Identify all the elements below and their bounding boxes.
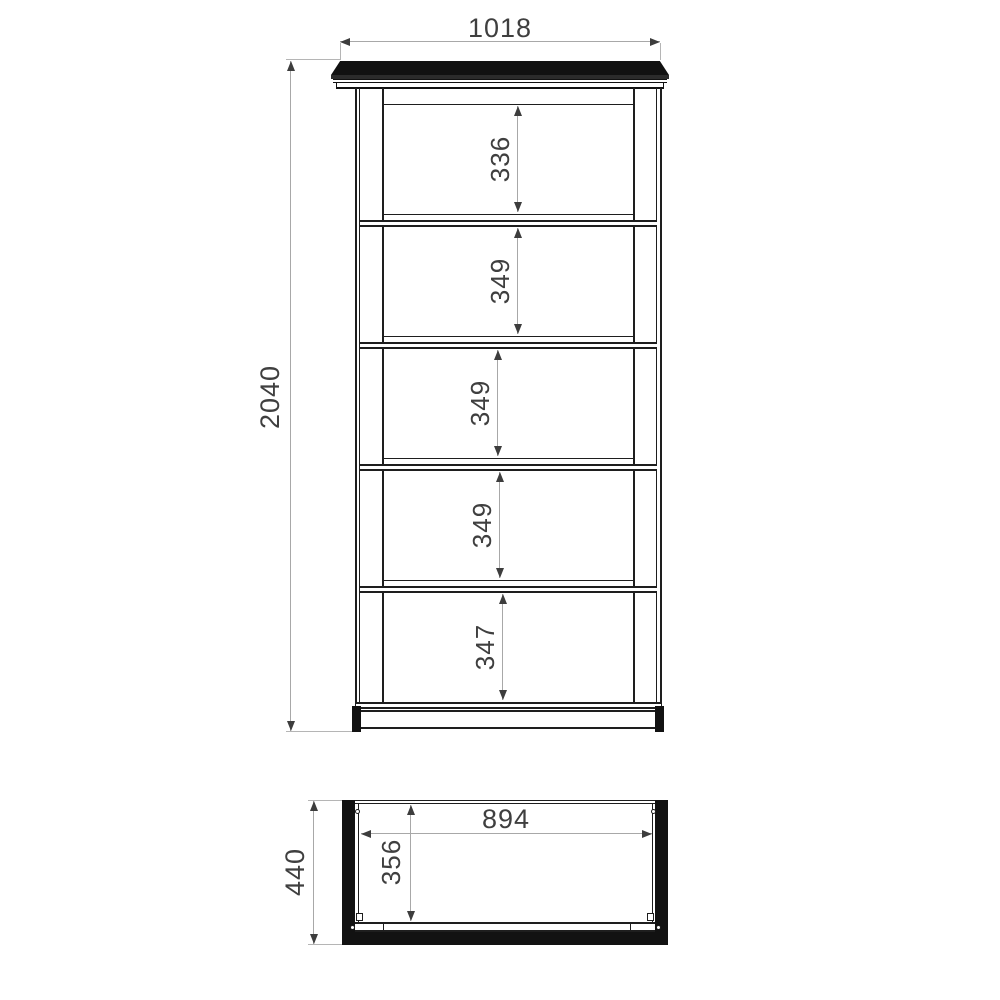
corner-block — [647, 913, 654, 921]
arrowhead-down — [494, 446, 502, 456]
arrowhead-left — [340, 38, 350, 46]
compartment-dimension-line — [502, 594, 503, 700]
arrowhead-right — [650, 38, 660, 46]
cornice-crown — [331, 61, 669, 75]
right-stile-edge — [633, 88, 635, 707]
right-foot — [655, 706, 664, 732]
rail-joint-line — [383, 922, 384, 932]
extension-line — [660, 43, 661, 60]
plan-depth-label: 440 — [281, 827, 309, 917]
arrowhead-down — [514, 324, 522, 334]
shelf-front-edge — [360, 586, 657, 593]
arrowhead-up — [494, 350, 502, 360]
compartment-height-label: 349 — [469, 485, 495, 565]
compartment-dimension-line — [517, 106, 518, 212]
bottom-board — [356, 702, 661, 709]
arrowhead-up — [496, 472, 504, 482]
extension-line — [308, 944, 342, 945]
shelf-front-edge — [360, 342, 657, 349]
left-foot — [352, 706, 361, 732]
compartment-dimension-line — [499, 472, 500, 578]
shelf-back-line — [383, 214, 633, 215]
plan-left-inner-wall — [358, 803, 359, 923]
front-width-label: 1018 — [455, 15, 545, 41]
top-rail-line — [383, 104, 633, 105]
left-side-panel-inner — [359, 88, 360, 707]
shelf-back-line — [383, 580, 633, 581]
depth-dimension-line — [313, 801, 314, 944]
plinth-rail — [361, 710, 655, 729]
shelf-back-line — [383, 458, 633, 459]
fitting-hole — [656, 925, 661, 930]
width-dimension-line — [340, 41, 660, 42]
arrowhead-down — [499, 690, 507, 700]
compartment-height-label: 336 — [487, 119, 513, 199]
compartment-dimension-line — [497, 350, 498, 456]
left-side-panel-outer — [355, 88, 357, 707]
plan-inner-width-label: 894 — [461, 806, 551, 832]
cornice-bead — [336, 83, 664, 89]
arrowhead-right — [642, 830, 652, 838]
arrowhead-down — [514, 202, 522, 212]
shelf-front-edge — [360, 220, 657, 227]
inner-width-dimension-line — [361, 833, 652, 834]
shelf-back-line — [383, 336, 633, 337]
plan-front-edge — [342, 932, 668, 945]
plan-front-rail — [355, 922, 655, 932]
height-dimension-line — [290, 61, 291, 731]
arrowhead-down — [496, 568, 504, 578]
fitting-hole — [651, 809, 656, 814]
corner-block — [356, 913, 363, 921]
extension-line — [286, 731, 356, 732]
arrowhead-down — [310, 934, 318, 944]
compartment-height-label: 347 — [472, 607, 498, 687]
extension-line — [340, 43, 341, 60]
plan-right-side — [655, 800, 668, 945]
right-side-panel-outer — [660, 88, 662, 707]
plan-left-side — [342, 800, 355, 945]
compartment-dimension-line — [517, 228, 518, 334]
arrowhead-up — [287, 61, 295, 71]
arrowhead-up — [310, 801, 318, 811]
fitting-hole — [355, 809, 360, 814]
compartment-height-label: 349 — [487, 241, 513, 321]
extension-line — [286, 59, 340, 60]
rail-joint-line — [630, 922, 631, 932]
compartment-height-label: 349 — [467, 363, 493, 443]
front-height-label: 2040 — [255, 352, 285, 442]
left-stile-edge — [382, 88, 384, 707]
arrowhead-up — [499, 594, 507, 604]
arrowhead-up — [407, 805, 415, 815]
plan-right-inner-wall — [652, 803, 653, 923]
extension-line — [308, 800, 342, 801]
shelf-front-edge — [360, 464, 657, 471]
right-side-panel-inner — [656, 88, 657, 707]
arrowhead-up — [514, 106, 522, 116]
furniture-technical-drawing: 1018 2040 — [0, 0, 1000, 1000]
plan-inner-depth-label: 356 — [378, 822, 404, 902]
plan-back-edge-outer — [355, 800, 655, 801]
inner-depth-dimension-line — [410, 805, 411, 921]
arrowhead-up — [514, 228, 522, 238]
arrowhead-left — [361, 830, 371, 838]
arrowhead-down — [287, 721, 295, 731]
arrowhead-down — [407, 911, 415, 921]
